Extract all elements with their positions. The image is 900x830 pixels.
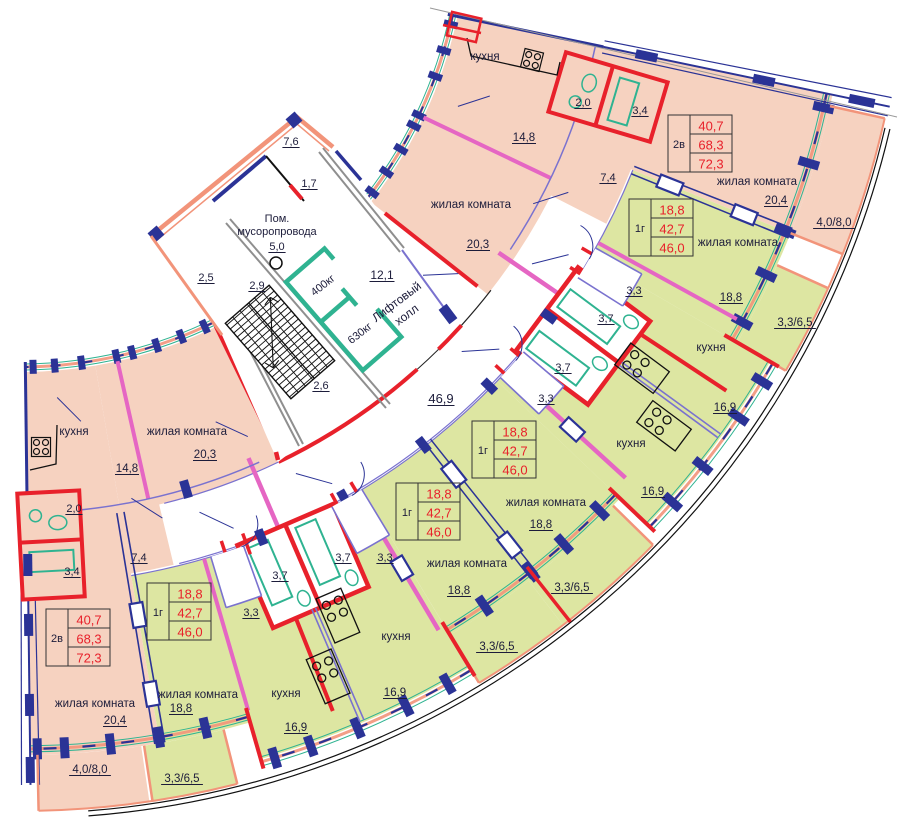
svg-text:42,7: 42,7	[177, 606, 202, 621]
svg-text:2,0: 2,0	[575, 97, 590, 109]
svg-text:3,7: 3,7	[598, 313, 613, 325]
svg-text:16,9: 16,9	[714, 402, 736, 414]
svg-text:жилая комната: жилая комната	[506, 497, 587, 509]
svg-text:кухня: кухня	[271, 688, 300, 700]
svg-text:3,4: 3,4	[632, 105, 647, 117]
svg-text:18,8: 18,8	[720, 292, 742, 304]
svg-text:1г: 1г	[478, 445, 488, 457]
svg-text:3,3: 3,3	[243, 607, 258, 619]
svg-text:3,3: 3,3	[377, 552, 392, 564]
svg-text:20,4: 20,4	[104, 715, 127, 727]
svg-text:18,8: 18,8	[502, 425, 527, 440]
svg-text:16,9: 16,9	[642, 486, 664, 498]
svg-text:жилая комната: жилая комната	[698, 237, 779, 249]
svg-text:18,8: 18,8	[170, 703, 192, 715]
svg-text:2в: 2в	[51, 633, 63, 645]
svg-text:кухня: кухня	[381, 631, 410, 643]
svg-text:68,3: 68,3	[76, 632, 101, 647]
svg-text:3,3/6,5: 3,3/6,5	[777, 317, 812, 329]
svg-text:2,5: 2,5	[198, 272, 213, 284]
svg-text:1г: 1г	[402, 507, 412, 519]
svg-text:16,9: 16,9	[384, 687, 406, 699]
svg-text:14,8: 14,8	[513, 132, 535, 144]
svg-text:кухня: кухня	[59, 426, 88, 438]
svg-text:5,0: 5,0	[269, 241, 284, 253]
svg-text:46,0: 46,0	[502, 463, 527, 478]
svg-text:68,3: 68,3	[698, 138, 723, 153]
svg-text:18,8: 18,8	[659, 203, 684, 218]
svg-text:40,7: 40,7	[76, 613, 101, 628]
svg-text:46,0: 46,0	[426, 525, 451, 540]
svg-text:жилая комната: жилая комната	[717, 176, 798, 188]
svg-text:18,8: 18,8	[448, 585, 470, 597]
svg-text:жилая комната: жилая комната	[431, 199, 512, 211]
svg-text:4,0/8,0: 4,0/8,0	[72, 764, 107, 776]
svg-text:12,1: 12,1	[370, 268, 394, 282]
svg-text:18,8: 18,8	[426, 487, 451, 502]
svg-text:1,7: 1,7	[301, 178, 316, 190]
svg-text:жилая комната: жилая комната	[147, 426, 228, 438]
svg-text:2,9: 2,9	[249, 280, 264, 292]
svg-text:42,7: 42,7	[502, 444, 527, 459]
svg-text:4,0/8,0: 4,0/8,0	[816, 217, 851, 229]
svg-text:20,4: 20,4	[765, 195, 788, 207]
svg-text:7,4: 7,4	[600, 172, 615, 184]
svg-text:3,3/6,5: 3,3/6,5	[479, 641, 514, 653]
svg-text:2,0: 2,0	[66, 503, 81, 515]
svg-text:кухня: кухня	[616, 438, 645, 450]
svg-text:3,4: 3,4	[64, 566, 79, 578]
svg-text:7,4: 7,4	[131, 552, 146, 564]
svg-text:72,3: 72,3	[698, 157, 723, 172]
svg-text:3,3/6,5: 3,3/6,5	[554, 582, 589, 594]
svg-text:20,3: 20,3	[467, 239, 489, 251]
svg-text:3,3/6,5: 3,3/6,5	[164, 773, 199, 785]
svg-text:18,8: 18,8	[177, 587, 202, 602]
svg-text:46,0: 46,0	[659, 241, 684, 256]
svg-text:40,7: 40,7	[698, 119, 723, 134]
svg-text:18,8: 18,8	[530, 519, 552, 531]
svg-text:жилая комната: жилая комната	[158, 689, 239, 701]
svg-text:14,8: 14,8	[116, 463, 138, 475]
svg-text:46,0: 46,0	[177, 625, 202, 640]
svg-text:42,7: 42,7	[426, 506, 451, 521]
svg-text:1г: 1г	[635, 223, 645, 235]
svg-text:кухня: кухня	[470, 51, 499, 63]
svg-text:46,9: 46,9	[428, 391, 453, 406]
svg-text:мусоропровода: мусоропровода	[237, 226, 317, 238]
svg-text:жилая комната: жилая комната	[55, 698, 136, 710]
svg-text:3,3: 3,3	[538, 393, 553, 405]
svg-text:7,6: 7,6	[283, 136, 298, 148]
svg-text:2в: 2в	[673, 139, 685, 151]
svg-text:3,7: 3,7	[272, 570, 287, 582]
svg-text:72,3: 72,3	[76, 651, 101, 666]
svg-text:Пом.: Пом.	[265, 213, 290, 225]
svg-text:кухня: кухня	[696, 342, 725, 354]
svg-text:16,9: 16,9	[285, 722, 307, 734]
svg-text:3,7: 3,7	[335, 552, 350, 564]
svg-text:20,3: 20,3	[194, 449, 216, 461]
svg-text:жилая комната: жилая комната	[427, 558, 508, 570]
svg-text:3,3: 3,3	[626, 285, 641, 297]
svg-text:42,7: 42,7	[659, 222, 684, 237]
svg-text:1г: 1г	[153, 607, 163, 619]
svg-text:2,6: 2,6	[313, 380, 328, 392]
svg-text:3,7: 3,7	[555, 362, 570, 374]
